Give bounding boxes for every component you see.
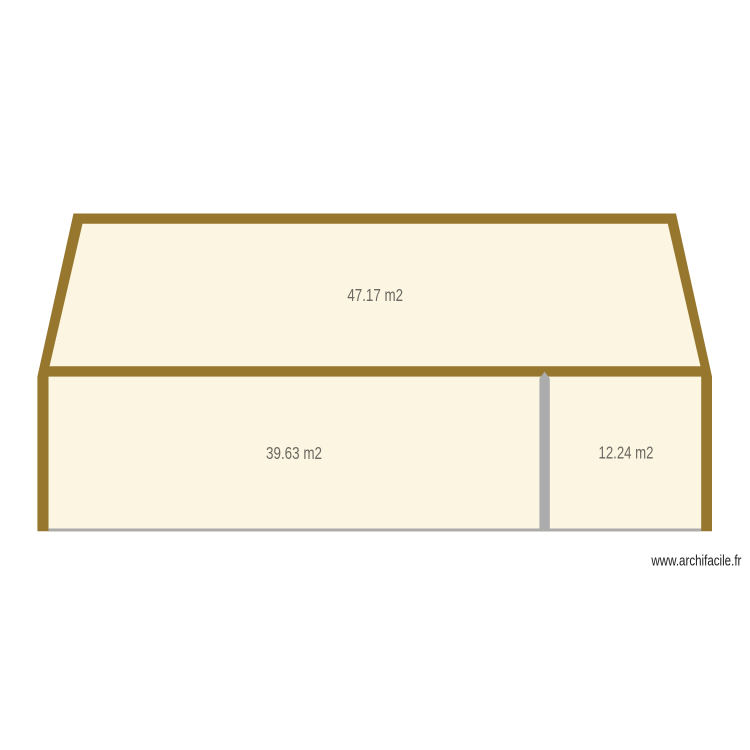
svg-text:12.24 m2: 12.24 m2 [599,443,654,463]
svg-text:www.archifacile.fr: www.archifacile.fr [651,554,742,570]
svg-text:47.17 m2: 47.17 m2 [347,285,403,305]
svg-text:39.63 m2: 39.63 m2 [266,443,322,463]
